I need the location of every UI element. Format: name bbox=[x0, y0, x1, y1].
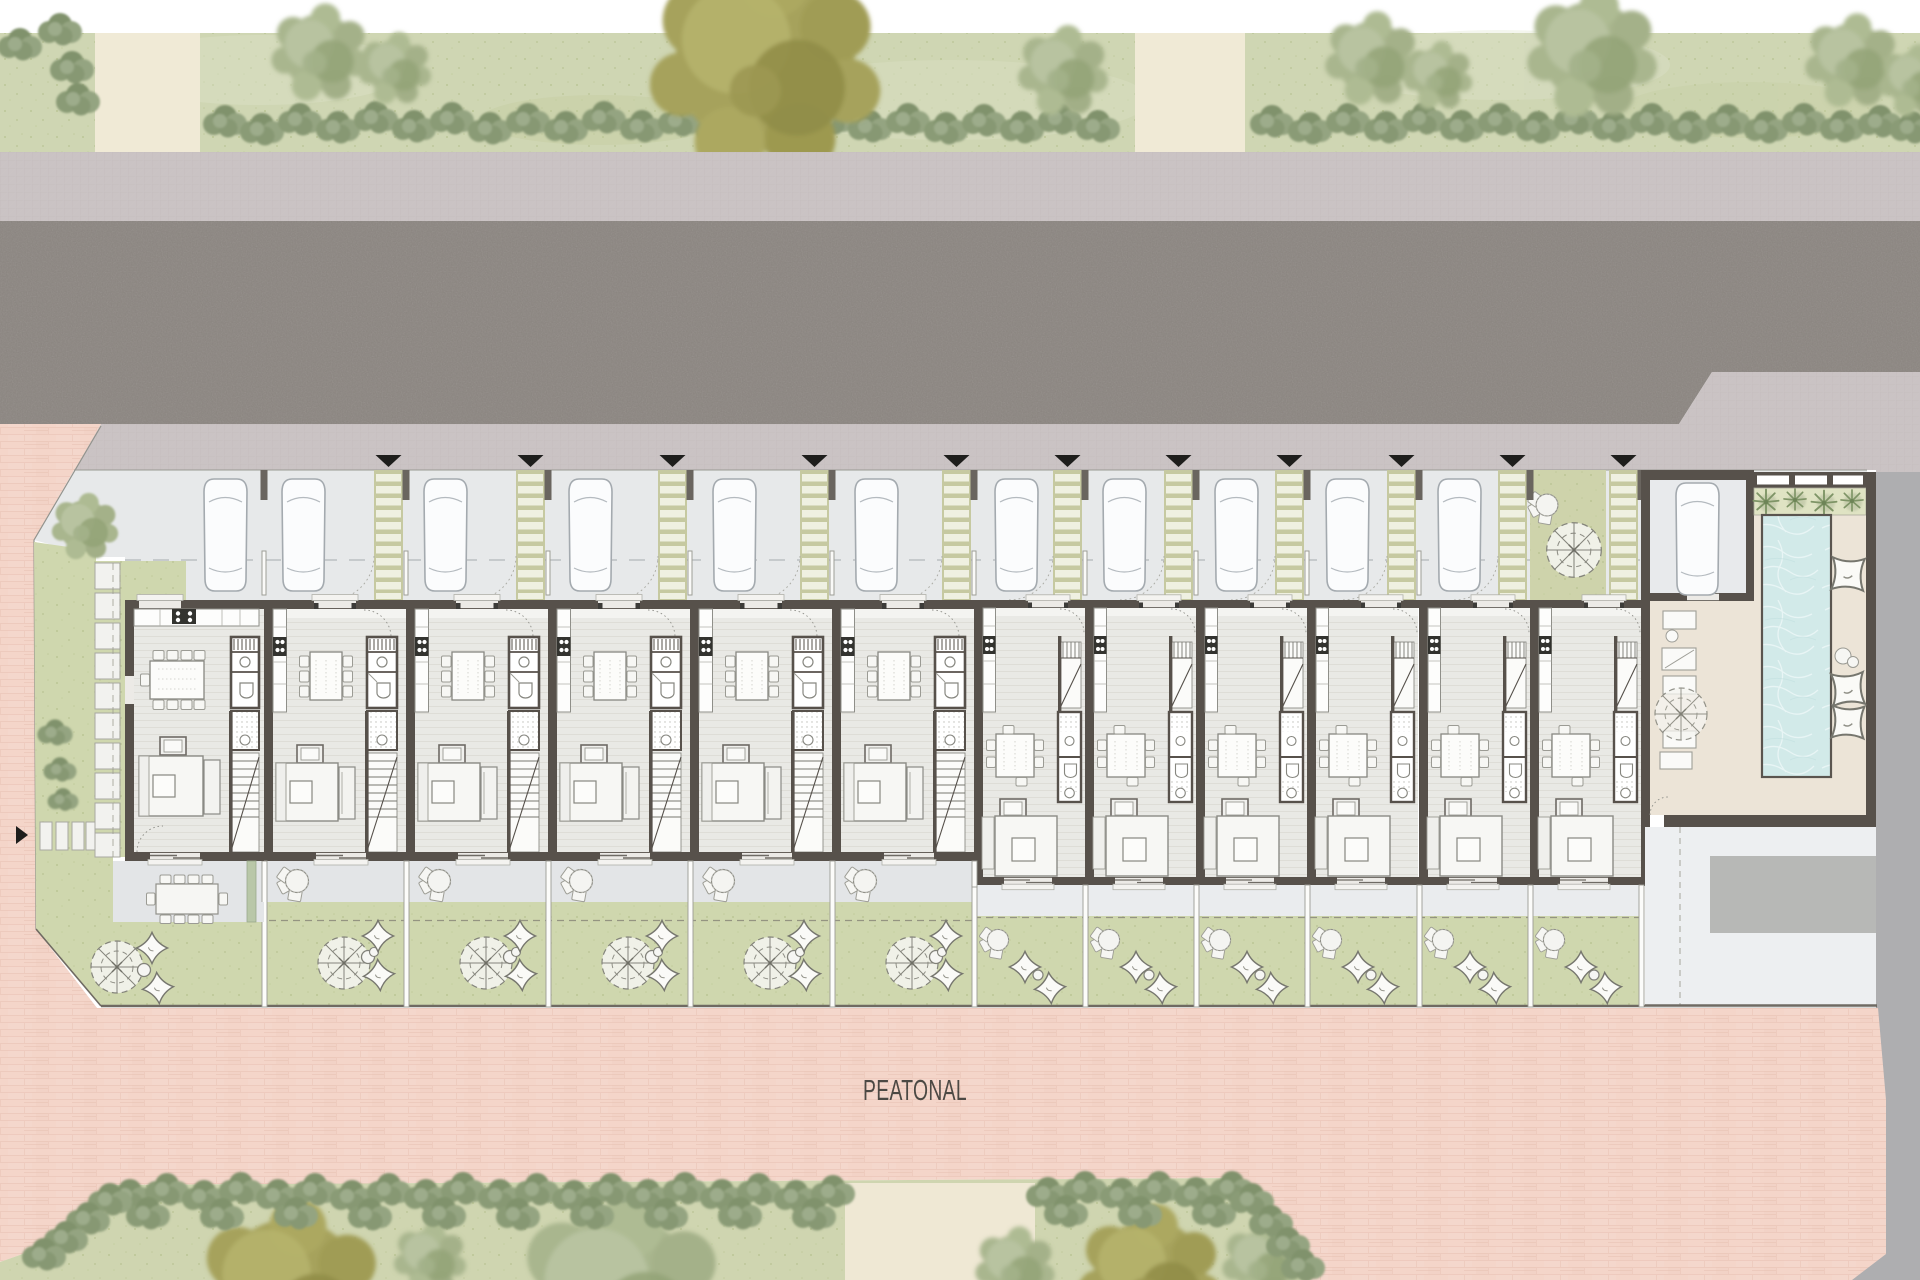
svg-text:PEATONAL: PEATONAL bbox=[863, 1075, 967, 1107]
